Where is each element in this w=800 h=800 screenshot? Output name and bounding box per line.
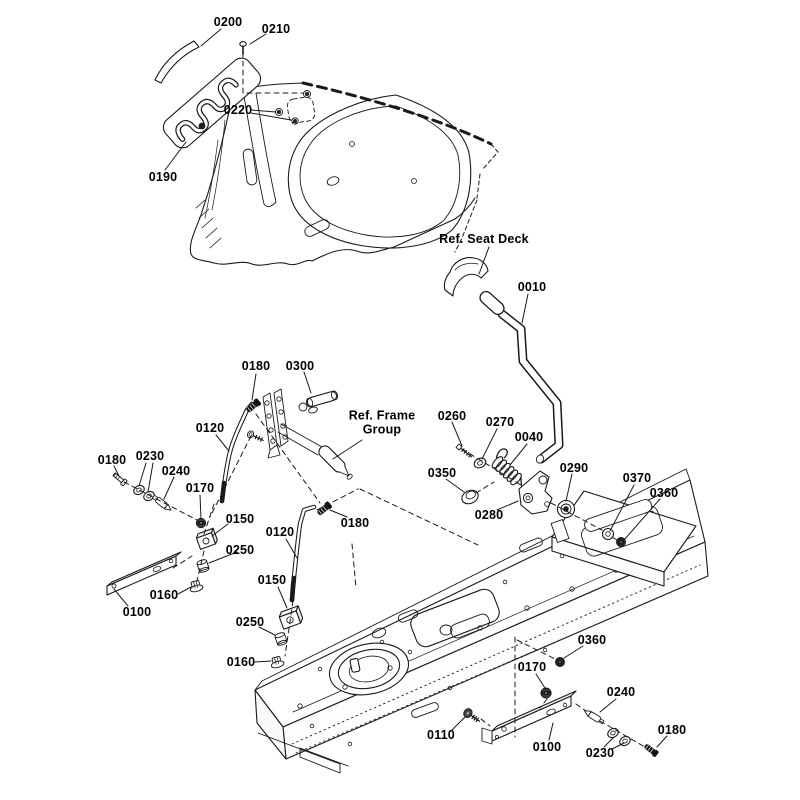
ref-frame-group-label: Ref. FrameGroup	[349, 409, 416, 438]
part-label-0110: 0110	[427, 728, 455, 742]
part-0240-fitting-left	[152, 494, 173, 512]
part-label-0040: 0040	[515, 430, 544, 444]
part-label-0160-b: 0160	[227, 655, 256, 669]
part-label-0230-a: 0230	[136, 449, 165, 463]
deck-hatching	[196, 200, 221, 248]
part-0160-nut-lower	[269, 655, 284, 669]
part-0370-washer	[603, 529, 614, 540]
part-label-0180-c: 0180	[341, 516, 370, 530]
part-label-0280: 0280	[475, 508, 504, 522]
part-label-0170-a: 0170	[186, 481, 215, 495]
part-label-0230-b: 0230	[586, 746, 615, 760]
part-label-0370: 0370	[623, 471, 652, 485]
part-0120-rod-upper	[222, 404, 252, 501]
part-0120-rod-lower	[292, 507, 314, 600]
diagram-canvas	[0, 0, 800, 800]
part-0180-screw-d	[112, 472, 127, 487]
part-label-0180-b: 0180	[98, 453, 127, 467]
part-0160-nut-left	[188, 579, 203, 593]
part-0170-nut-left	[196, 518, 205, 527]
ref-frame-group-line1: Ref. Frame	[349, 409, 416, 423]
part-label-0160-a: 0160	[150, 588, 179, 602]
ref-seat-deck-hook	[444, 258, 488, 296]
part-label-0250-b: 0250	[236, 615, 265, 629]
part-label-0240-a: 0240	[162, 464, 191, 478]
part-label-0010: 0010	[518, 280, 547, 294]
part-label-0120-b: 0120	[266, 525, 295, 539]
part-label-0270: 0270	[486, 415, 515, 429]
part-0300-link	[299, 390, 339, 414]
part-0280-bracket	[519, 471, 552, 514]
part-label-0190: 0190	[149, 170, 178, 184]
part-0250-bushing-left	[196, 559, 209, 574]
part-label-0360-b: 0360	[578, 633, 607, 647]
part-0200-strip	[155, 41, 199, 83]
part-label-0290: 0290	[560, 461, 589, 475]
part-0260-screw	[456, 444, 473, 459]
part-label-0200: 0200	[214, 15, 243, 29]
part-label-0300: 0300	[286, 359, 315, 373]
part-label-0220: 0220	[224, 103, 253, 117]
part-label-0150-b: 0150	[258, 573, 287, 587]
part-0110-screw	[462, 707, 482, 725]
part-label-0180-a: 0180	[242, 359, 271, 373]
part-label-0100-a: 0100	[123, 605, 152, 619]
part-label-0250-a: 0250	[226, 543, 255, 557]
ref-frame-group-line2: Group	[363, 423, 402, 437]
part-0360-nut-b	[556, 658, 565, 667]
part-label-0150-a: 0150	[226, 512, 255, 526]
part-label-0170-b: 0170	[518, 660, 547, 674]
part-0360-nut-a	[617, 538, 626, 547]
part-0100-bar-right	[482, 691, 576, 744]
part-label-0180-d: 0180	[658, 723, 687, 737]
part-0230-washers-left	[132, 484, 156, 503]
part-0220-bolts	[276, 91, 316, 125]
part-0150-block-lower	[278, 606, 304, 629]
part-0170-nut-b	[541, 688, 551, 698]
part-0250-bushing-lower	[274, 632, 287, 647]
part-label-0100-b: 0100	[533, 740, 562, 754]
part-0180-screw-c	[644, 743, 659, 756]
part-0290-bushing	[558, 501, 575, 518]
ref-seat-deck-label: Ref. Seat Deck	[439, 232, 529, 246]
part-label-0210: 0210	[262, 22, 291, 36]
part-0150-block-left	[195, 528, 218, 549]
ref-frame-group-bracket	[246, 389, 355, 482]
part-label-0350: 0350	[428, 466, 457, 480]
part-label-0240-b: 0240	[607, 685, 636, 699]
part-label-0260: 0260	[438, 409, 467, 423]
part-label-0120-a: 0120	[196, 421, 225, 435]
frame-group-screw	[246, 430, 264, 444]
parts-diagram-page: 0200 0210 0220 0190 Ref. Seat Deck 0010 …	[0, 0, 800, 800]
part-label-0360-a: 0360	[650, 486, 679, 500]
